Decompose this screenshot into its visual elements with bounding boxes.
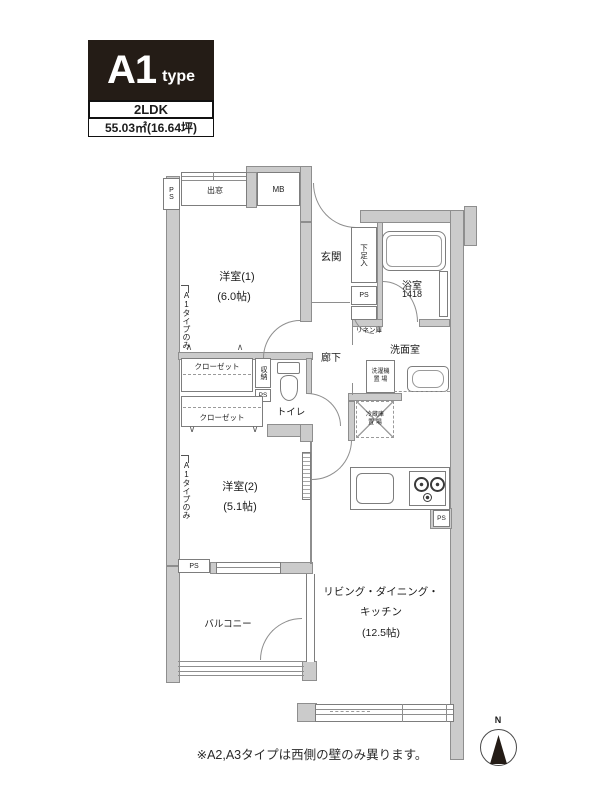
shoe-box-label: 下足入	[359, 244, 370, 267]
west2-size: (5.1帖)	[223, 498, 257, 514]
bay-window-tick	[213, 172, 214, 181]
washbasin-bowl	[412, 370, 444, 388]
type-word: type	[162, 68, 195, 86]
wall-entrance-west1	[300, 222, 312, 322]
west2-balcony-window-mid	[217, 567, 280, 568]
toilet-tank	[277, 362, 300, 374]
bay-window-glass-line1	[182, 176, 246, 177]
ldk-door-arc	[312, 440, 352, 480]
west2-balcony-window	[216, 562, 281, 574]
meter-box: MB	[257, 172, 300, 206]
type-title-box: A1 type	[88, 40, 214, 100]
ldk-window-dash	[330, 711, 370, 712]
wall-mb-right	[300, 166, 312, 222]
fridge-space: 冷蔵庫 置 場	[356, 401, 394, 438]
stove-burner-right	[430, 477, 445, 492]
fridge-label-line2: 置 場	[368, 420, 382, 428]
ldk-window-divider1	[402, 704, 403, 722]
entrance-step-line	[312, 302, 350, 303]
entrance-label: 玄関	[321, 249, 342, 264]
area-badge: 55.03㎡(16.64坪)	[88, 119, 214, 137]
corridor-washroom-line-a	[352, 327, 353, 345]
balcony-ldk-glass	[306, 574, 315, 662]
bath-size: 1418	[402, 289, 422, 299]
washroom-label: 洗面室	[390, 341, 420, 356]
linen-box	[351, 306, 377, 320]
floor-plan-page: A1 type 2LDK 55.03㎡(16.64坪)	[0, 0, 600, 800]
ps-label: PS	[359, 292, 368, 299]
washer-space: 洗濯機 置 場	[366, 360, 395, 393]
ps-box-west2: PS	[178, 559, 210, 573]
wall-fridge-left	[348, 401, 355, 441]
a1-only-lower: A1タイプのみ	[181, 461, 192, 519]
wall-top-right	[360, 210, 464, 223]
wall-balcony-corner	[302, 661, 317, 681]
ps-box-kitchen: PS	[433, 510, 450, 527]
folding-mark-2: ∧	[237, 342, 244, 353]
balcony-rail-line3	[178, 671, 304, 672]
wall-west2-bottom-right	[280, 562, 313, 574]
entrance-door-arc	[313, 183, 356, 228]
layout-badge: 2LDK	[88, 100, 214, 119]
hallway-label: 廊下	[321, 349, 341, 364]
washer-label-line1: 洗濯機	[371, 369, 389, 377]
bay-window-glass-line2	[182, 180, 246, 181]
west2-name: 洋室(2)	[222, 478, 257, 494]
a1-only-upper: A1タイプのみ	[181, 291, 192, 349]
ldk-name-line2: キッチン	[360, 604, 402, 619]
wall-topright-step	[464, 206, 477, 246]
ps-box-topleft: PS	[163, 178, 180, 210]
closet-upper-label: クローゼット	[195, 361, 240, 372]
washbasin-dash	[394, 391, 450, 392]
ldk-name-line1: リビング・ダイニング・	[323, 584, 439, 599]
ps-label: PS	[168, 187, 175, 201]
north-label: N	[495, 715, 502, 725]
footnote: ※A2,A3タイプは西側の壁のみ異ります。	[197, 744, 428, 763]
toilet-bowl	[280, 375, 298, 401]
stove-burner-small	[423, 493, 432, 502]
closet-lower-label: クローゼット	[200, 412, 245, 423]
type-code: A1	[107, 50, 156, 90]
west1-size: (6.0帖)	[217, 288, 251, 304]
washer-label-line2: 置 場	[374, 377, 388, 385]
west1-door-arc	[263, 320, 300, 358]
west2-sliding-door	[302, 452, 311, 500]
ps-label: PS	[189, 563, 198, 570]
ldk-window-line1	[316, 709, 453, 710]
toilet-door-arc	[307, 393, 341, 426]
wall-ldk-corner	[297, 703, 317, 722]
linen-label: リネン庫	[356, 324, 382, 334]
closet-lower-door-line	[183, 407, 261, 408]
wall-bath-bottom-right	[419, 319, 450, 327]
meter-box-label: MB	[273, 185, 285, 194]
bath-counter	[439, 271, 448, 317]
wall-toilet-right	[306, 358, 312, 394]
wall-left-upper	[166, 176, 180, 566]
wall-washroom-bottom	[348, 393, 402, 401]
ps-label: PS	[437, 515, 446, 522]
closet-upper-door-line	[183, 374, 251, 375]
shoe-box: 下足入	[351, 227, 377, 283]
balcony-label: バルコニー	[204, 616, 251, 630]
storage-label: 収納	[258, 366, 268, 380]
ldk-size: (12.5帖)	[362, 625, 400, 640]
ldk-bottom-window	[315, 704, 454, 722]
storage-box: 収納	[255, 358, 271, 388]
kitchen-sink	[356, 473, 394, 504]
bathtub-inner	[386, 235, 442, 267]
ldk-window-line2	[316, 714, 453, 715]
wall-right	[450, 210, 464, 760]
stove-burner-left	[414, 477, 429, 492]
toilet-label: トイレ	[277, 404, 306, 418]
balcony-rail-line4	[178, 675, 304, 676]
bay-window-label: 出窓	[207, 185, 223, 196]
west1-name: 洋室(1)	[219, 268, 254, 284]
corridor-washroom-line-b	[352, 383, 353, 395]
balcony-door-arc	[260, 618, 302, 660]
fridge-label-line1: 冷蔵庫	[366, 412, 384, 420]
balcony-rail-line2	[178, 666, 304, 667]
balcony-rail-line1	[178, 661, 304, 662]
folding-mark-3: ∨	[189, 424, 196, 435]
ldk-window-divider2	[446, 704, 447, 722]
folding-mark-4: ∨	[252, 424, 259, 435]
ps-box-entrance: PS	[351, 286, 377, 305]
